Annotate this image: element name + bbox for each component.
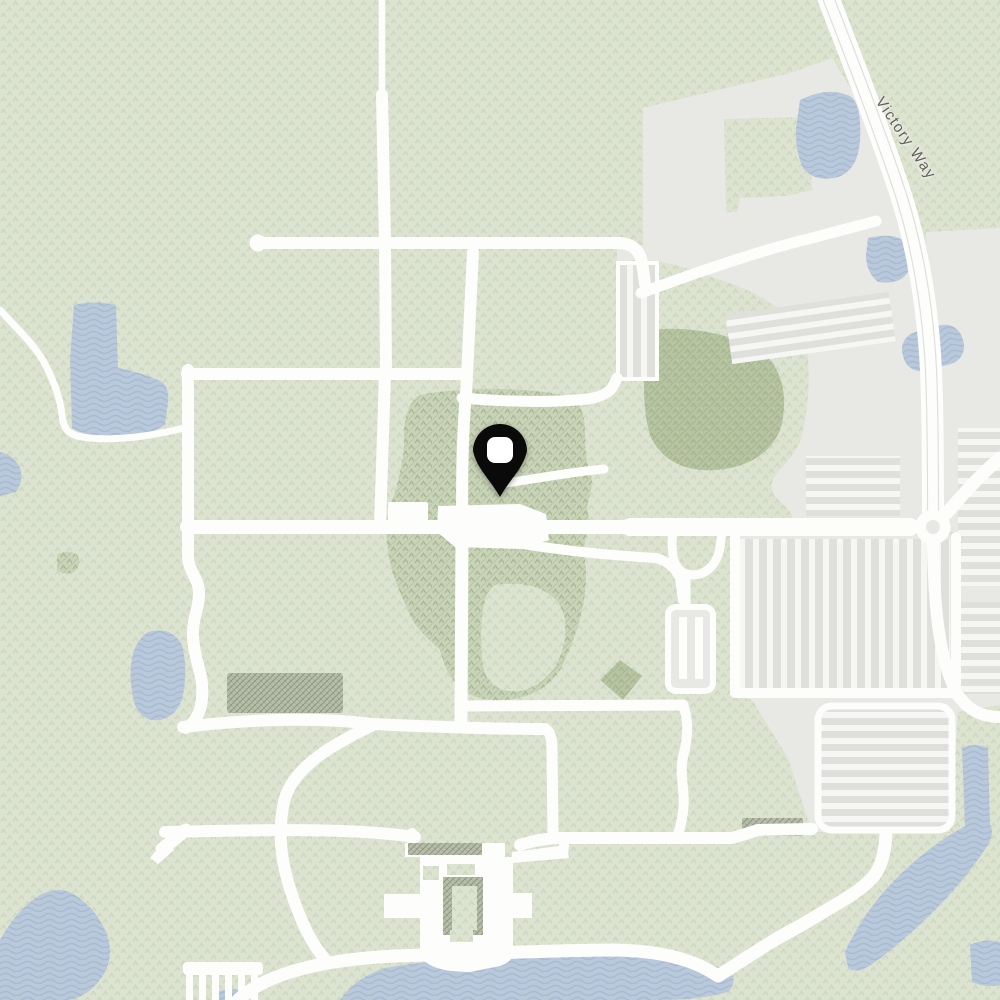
map-viewport[interactable]: Victory Way: [0, 0, 1000, 1000]
map-canvas: [0, 0, 1000, 1000]
roundabout: [916, 510, 951, 545]
